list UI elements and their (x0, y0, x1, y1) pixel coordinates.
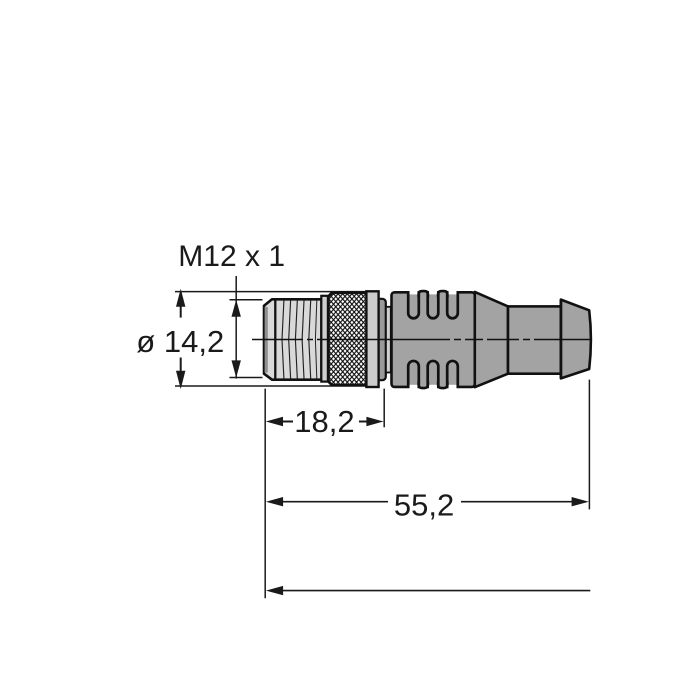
svg-text:ø 14,2: ø 14,2 (136, 324, 224, 359)
svg-text:M12 x 1: M12 x 1 (178, 240, 285, 273)
svg-text:55,2: 55,2 (394, 488, 454, 523)
svg-text:18,2: 18,2 (294, 404, 354, 439)
